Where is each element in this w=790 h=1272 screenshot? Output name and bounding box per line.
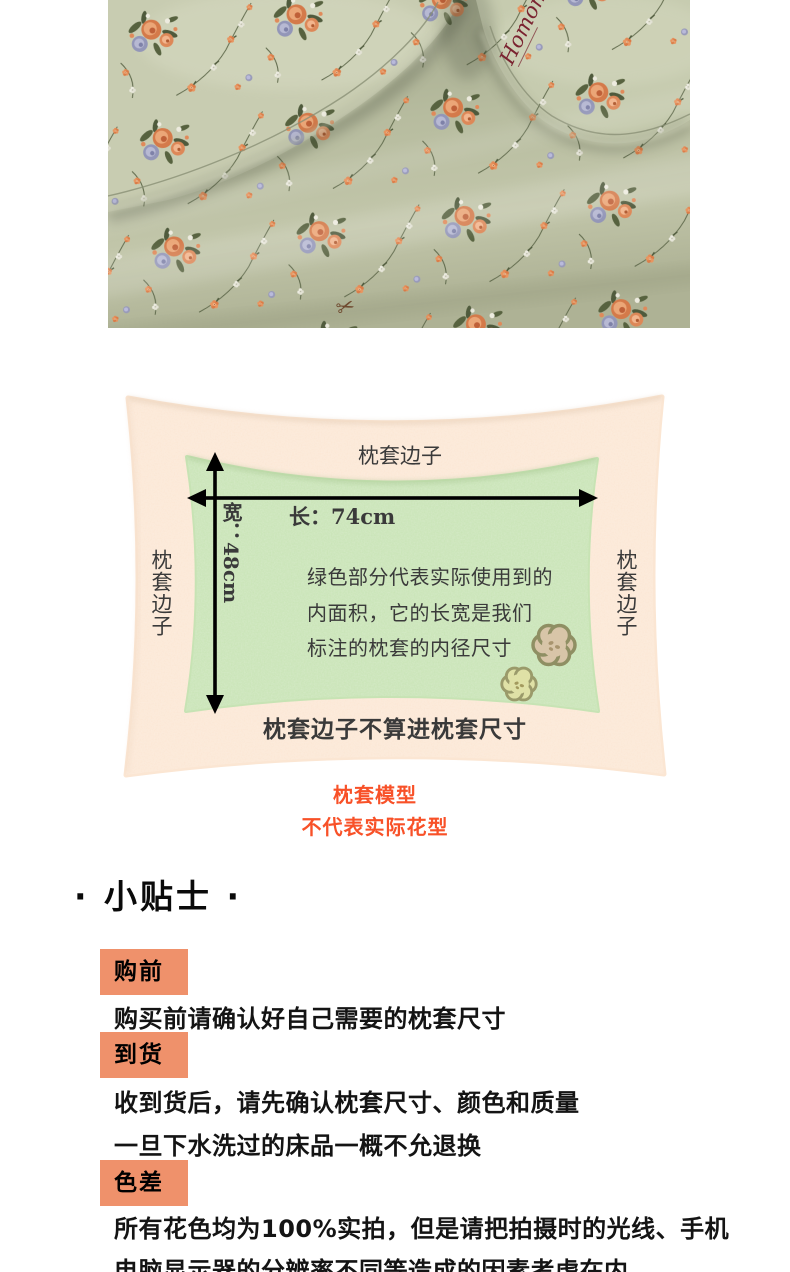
tip-badge-on-arrival: 到货: [100, 1032, 188, 1078]
tip-badge-before-purchase: 购前: [100, 949, 188, 995]
product-photo: Homon ✂: [108, 0, 690, 328]
tip-text: 收到货后，请先确认枕套尺寸、颜色和质量: [114, 1083, 774, 1118]
flower-doodle-small: [502, 668, 536, 700]
product-detail-page: Homon ✂: [0, 0, 790, 1272]
tip-text: 一旦下水洗过的床品一概不允退换: [114, 1126, 774, 1161]
tips-section-title: · 小贴士 ·: [74, 870, 242, 918]
edge-label-top: 枕套边子: [300, 440, 500, 470]
tip-text: 所有花色均为100%实拍，但是请把拍摄时的光线、手机: [114, 1209, 774, 1244]
tip-text: 电脑显示器的分辨率不同等造成的因素考虑在内: [114, 1251, 774, 1272]
edge-label-right: 枕套边子: [611, 549, 641, 637]
description-line: 绿色部分代表实际使用到的: [307, 560, 567, 596]
description-line: 内面积，它的长宽是我们: [307, 596, 567, 632]
length-dimension-label: 长：74cm: [289, 501, 395, 531]
width-dimension-label: 宽：48cm: [217, 502, 246, 603]
diagram-caption-2: 不代表实际花型: [125, 811, 625, 840]
description-line: 标注的枕套的内径尺寸: [307, 631, 567, 667]
inner-area-description: 绿色部分代表实际使用到的 内面积，它的长宽是我们 标注的枕套的内径尺寸: [307, 560, 567, 667]
tip-text: 购买前请确认好自己需要的枕套尺寸: [114, 999, 774, 1034]
edge-not-counted-note: 枕套边子不算进枕套尺寸: [145, 710, 645, 744]
diagram-caption-1: 枕套模型: [125, 779, 625, 808]
tip-badge-color-difference: 色差: [100, 1160, 188, 1206]
edge-label-left: 枕套边子: [146, 549, 176, 637]
